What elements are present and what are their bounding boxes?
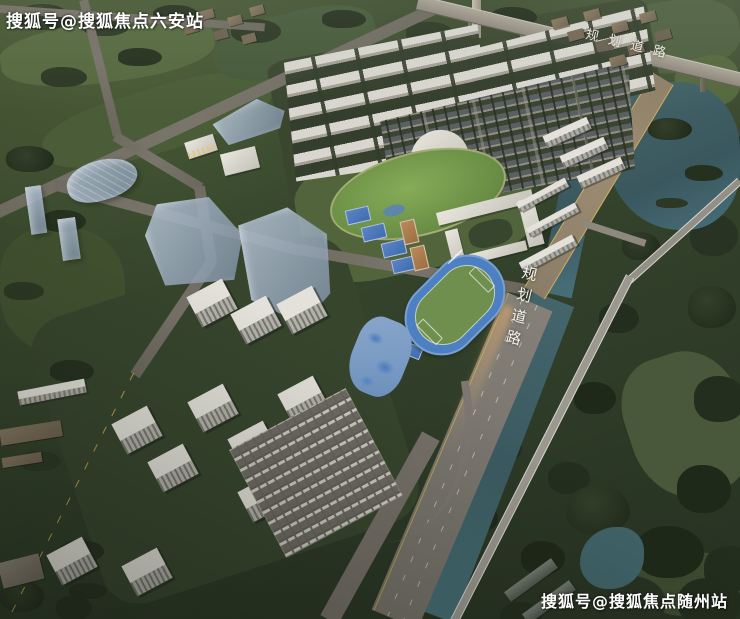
low-rise-building bbox=[1, 452, 42, 468]
village-house bbox=[213, 28, 229, 40]
field-patch bbox=[608, 337, 740, 511]
village-house bbox=[241, 32, 257, 44]
tree-grove bbox=[6, 146, 54, 172]
tree-grove bbox=[688, 286, 736, 328]
low-rise-building bbox=[0, 553, 45, 588]
pond bbox=[580, 527, 644, 589]
apartment-tower bbox=[46, 537, 97, 586]
goal-box bbox=[416, 318, 443, 345]
village-house bbox=[249, 4, 265, 16]
village-house bbox=[583, 8, 601, 22]
goal-box bbox=[468, 266, 495, 293]
commercial-building bbox=[220, 146, 260, 176]
watermark-top-left: 搜狐号@搜狐焦点六安站 bbox=[6, 7, 204, 32]
aerial-masterplan-render: 规划道路 规划道路 搜狐号@搜狐焦点六安站 搜狐号@搜狐焦点随州站 bbox=[0, 0, 740, 619]
low-rise-building bbox=[0, 420, 63, 446]
watermark-bottom-right: 搜狐号@搜狐焦点随州站 bbox=[541, 588, 728, 612]
village-house bbox=[639, 10, 657, 24]
village-house bbox=[609, 54, 627, 68]
river-island-trees bbox=[648, 118, 692, 140]
village-house bbox=[227, 14, 243, 26]
